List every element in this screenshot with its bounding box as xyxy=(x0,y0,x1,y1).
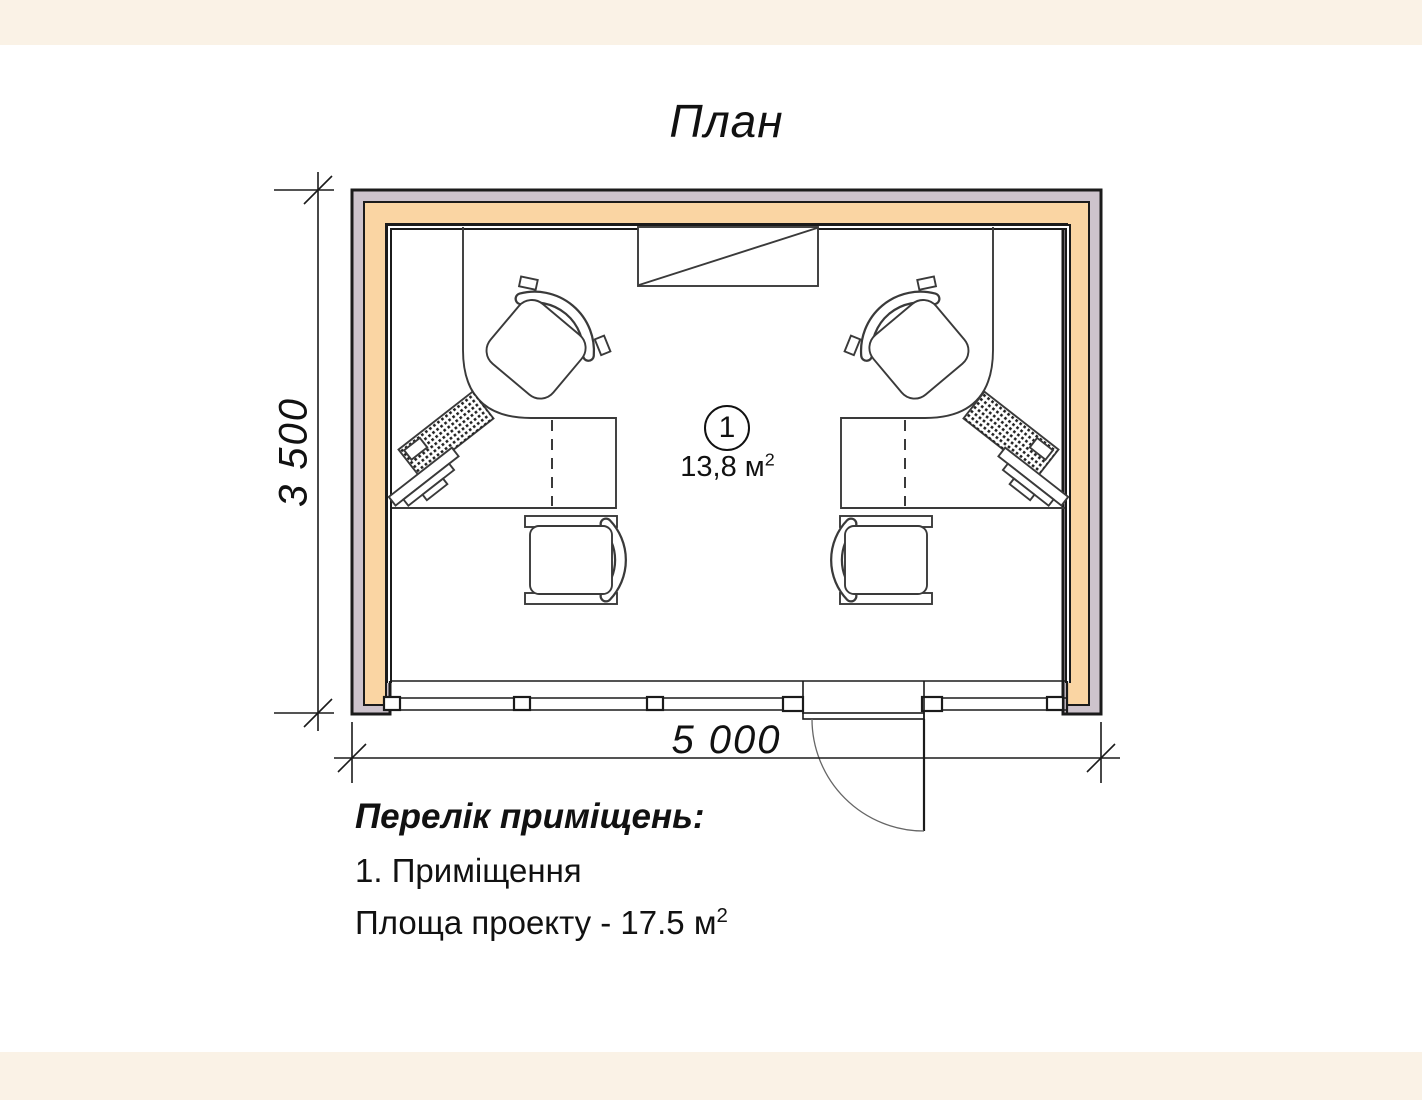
workstation-right xyxy=(839,227,1068,517)
legend-project-area: Площа проекту - 17.5 м2 xyxy=(355,906,728,939)
workstation-left xyxy=(389,227,616,517)
plan-title: План xyxy=(352,94,1101,148)
cabinet xyxy=(638,227,818,286)
room-number: 1 xyxy=(719,411,736,445)
room-number-badge: 1 xyxy=(704,405,750,451)
window-mullions xyxy=(384,697,1063,711)
room-legend: Перелік приміщень: 1. Приміщення Площа п… xyxy=(355,799,728,958)
visitor-chair-right xyxy=(837,516,932,604)
window-wall xyxy=(384,681,1067,711)
dimension-height-label: 3 500 xyxy=(272,397,317,507)
floor-plan-page: План 5 000 3 500 1 13,8 м2 Перелік примі… xyxy=(0,0,1422,1100)
window-frame-lines xyxy=(390,698,1067,710)
office-chair-left xyxy=(466,270,615,416)
room-area-label: 13,8 м2 xyxy=(640,451,815,484)
legend-heading: Перелік приміщень: xyxy=(355,799,728,834)
legend-item: 1. Приміщення xyxy=(355,854,728,887)
office-chair-right xyxy=(839,270,988,416)
dimension-width-label: 5 000 xyxy=(352,718,1101,763)
visitor-chair-left xyxy=(525,516,620,604)
